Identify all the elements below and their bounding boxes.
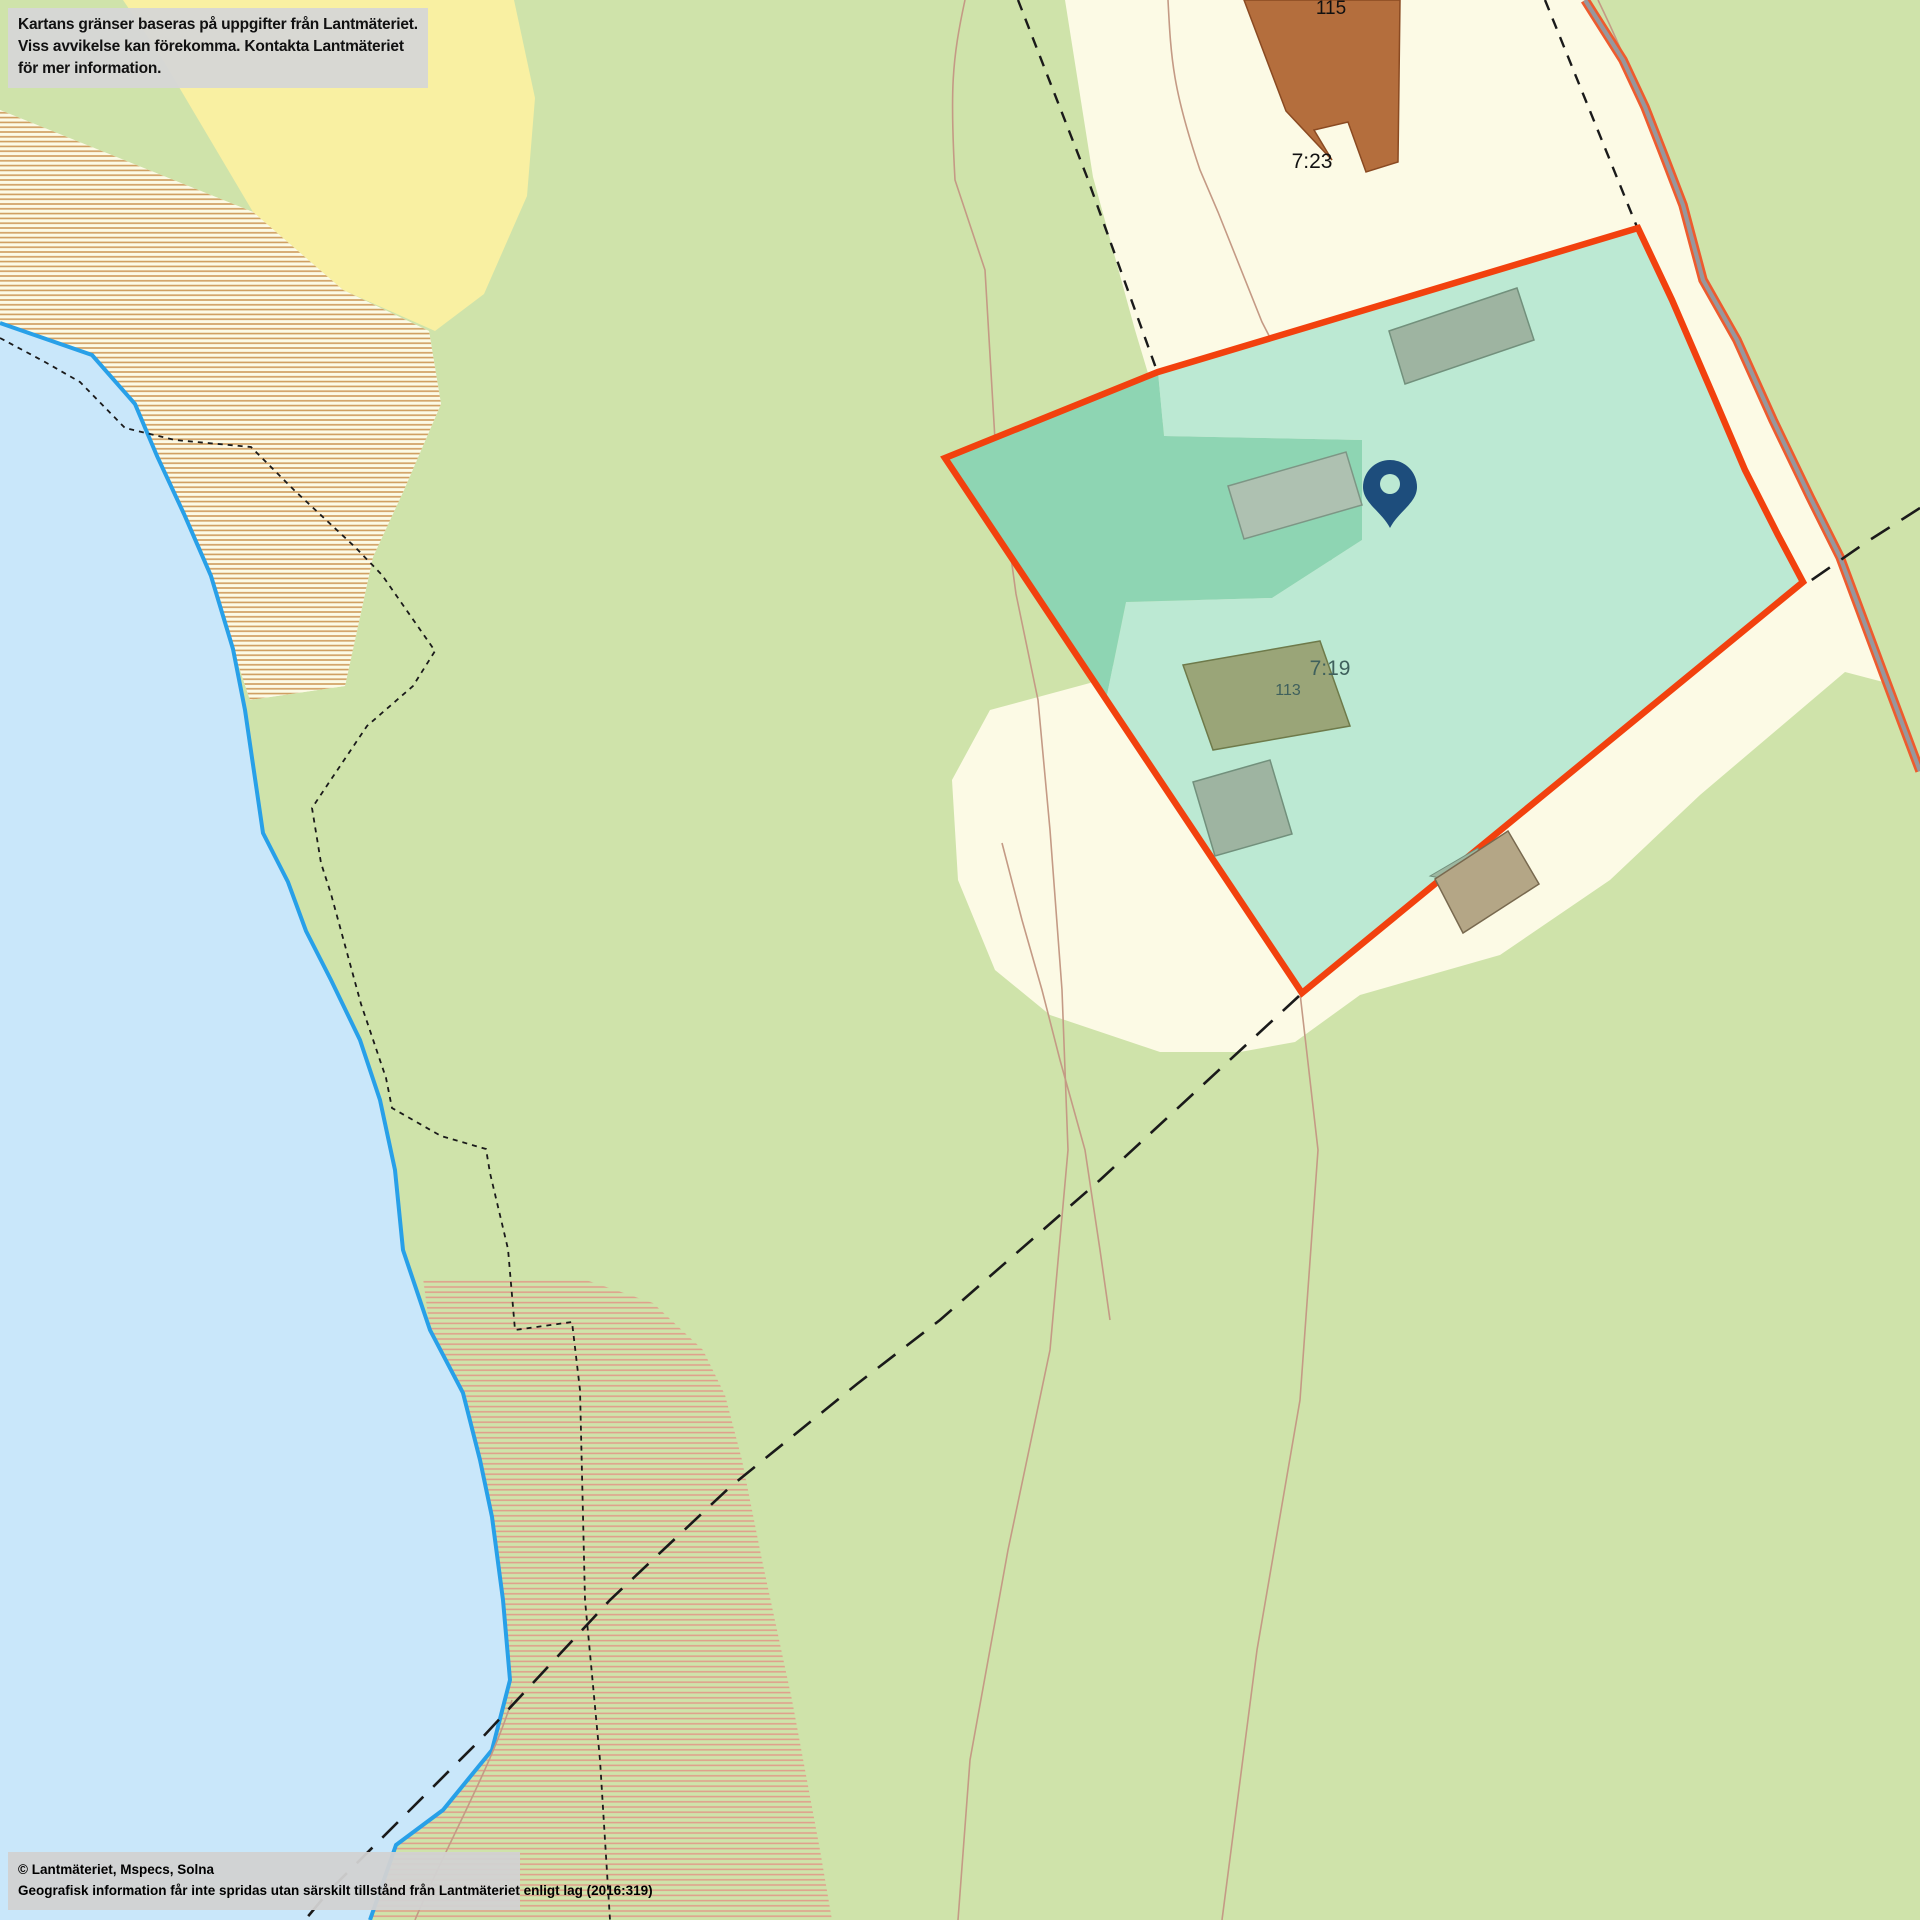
parcel-7-19-label: 7:19	[1310, 657, 1351, 680]
map-disclaimer: Kartans gränser baseras på uppgifter frå…	[8, 8, 428, 88]
map-attribution: © Lantmäteriet, Mspecs, Solna Geografisk…	[8, 1852, 520, 1910]
attribution-line-2: Geografisk information får inte spridas …	[18, 1881, 510, 1902]
attribution-line-1: © Lantmäteriet, Mspecs, Solna	[18, 1860, 510, 1881]
building-115-label: 115	[1316, 0, 1346, 19]
map-canvas[interactable]: 115 7:23 7:19 113	[0, 0, 1920, 1920]
disclaimer-line-2: Viss avvikelse kan förekomma. Kontakta L…	[18, 36, 418, 80]
disclaimer-line-1: Kartans gränser baseras på uppgifter frå…	[18, 14, 418, 36]
building-113-label: 113	[1275, 682, 1301, 699]
parcel-7-23-label: 7:23	[1292, 150, 1333, 173]
map-viewport[interactable]: 115 7:23 7:19 113 Kartans gränser basera…	[0, 0, 1920, 1920]
